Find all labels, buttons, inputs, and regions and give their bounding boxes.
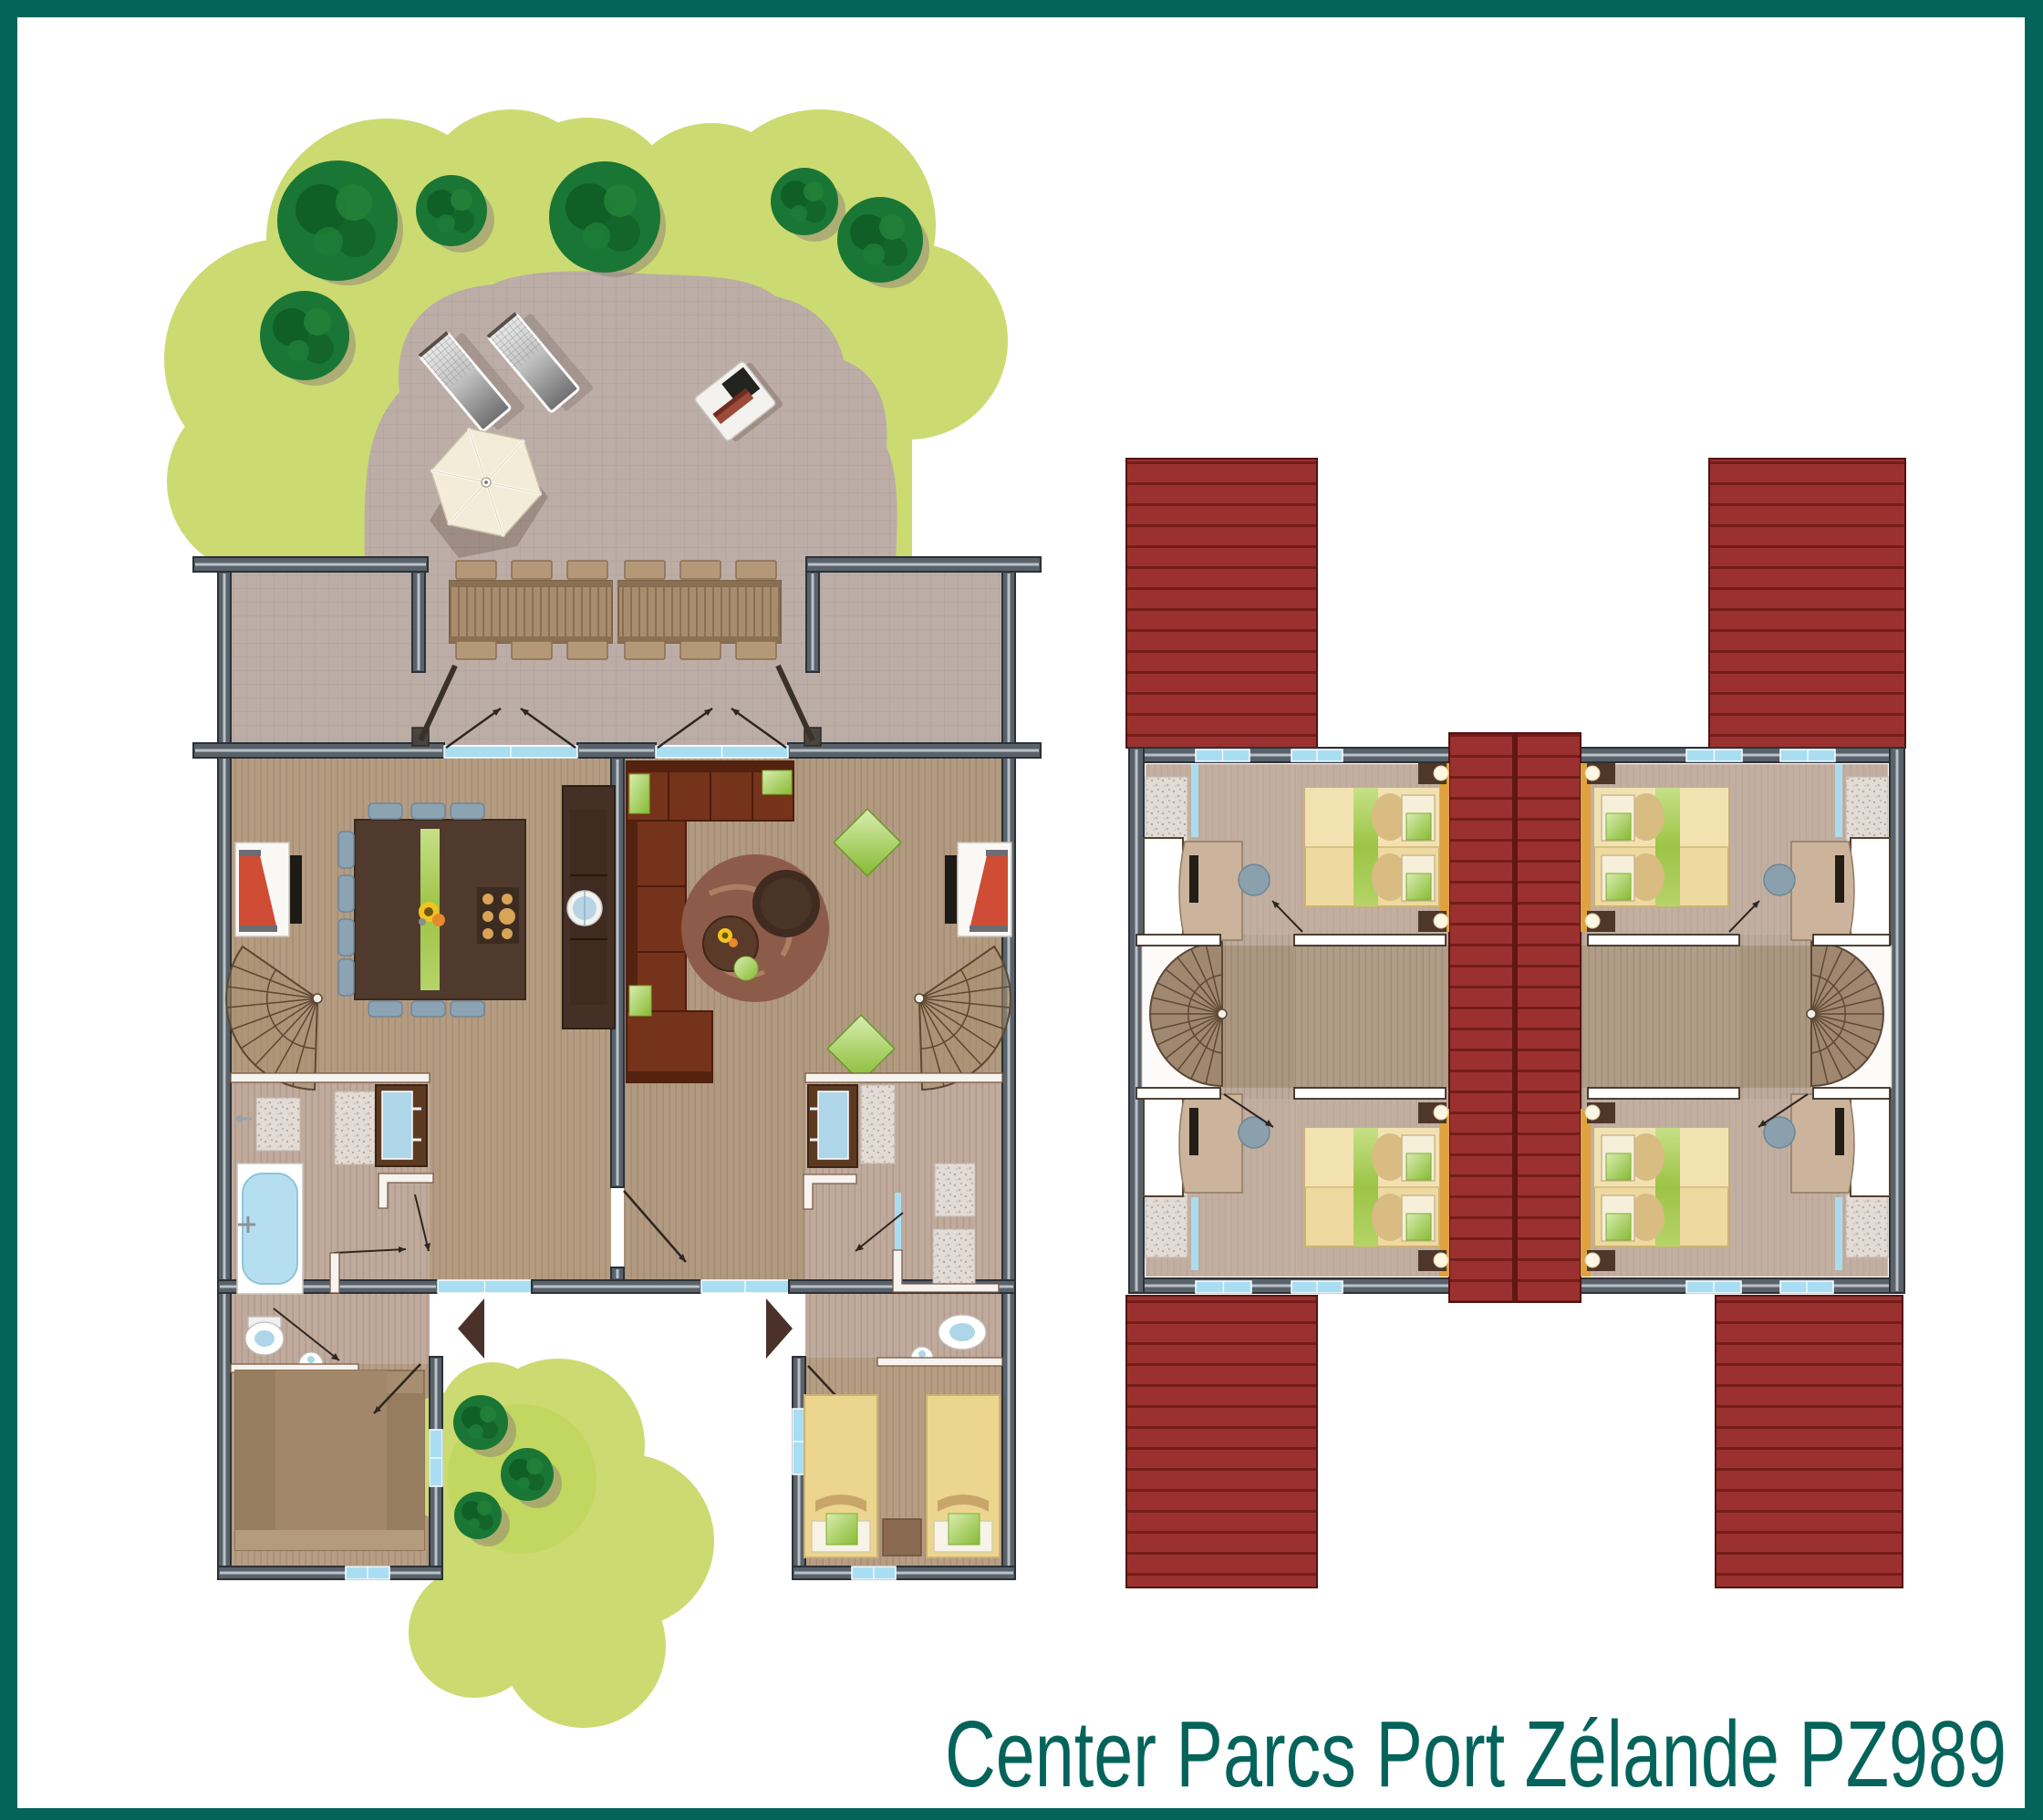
svg-text:Center Parcs Port Zélande PZ98: Center Parcs Port Zélande PZ989 — [945, 1701, 2007, 1806]
